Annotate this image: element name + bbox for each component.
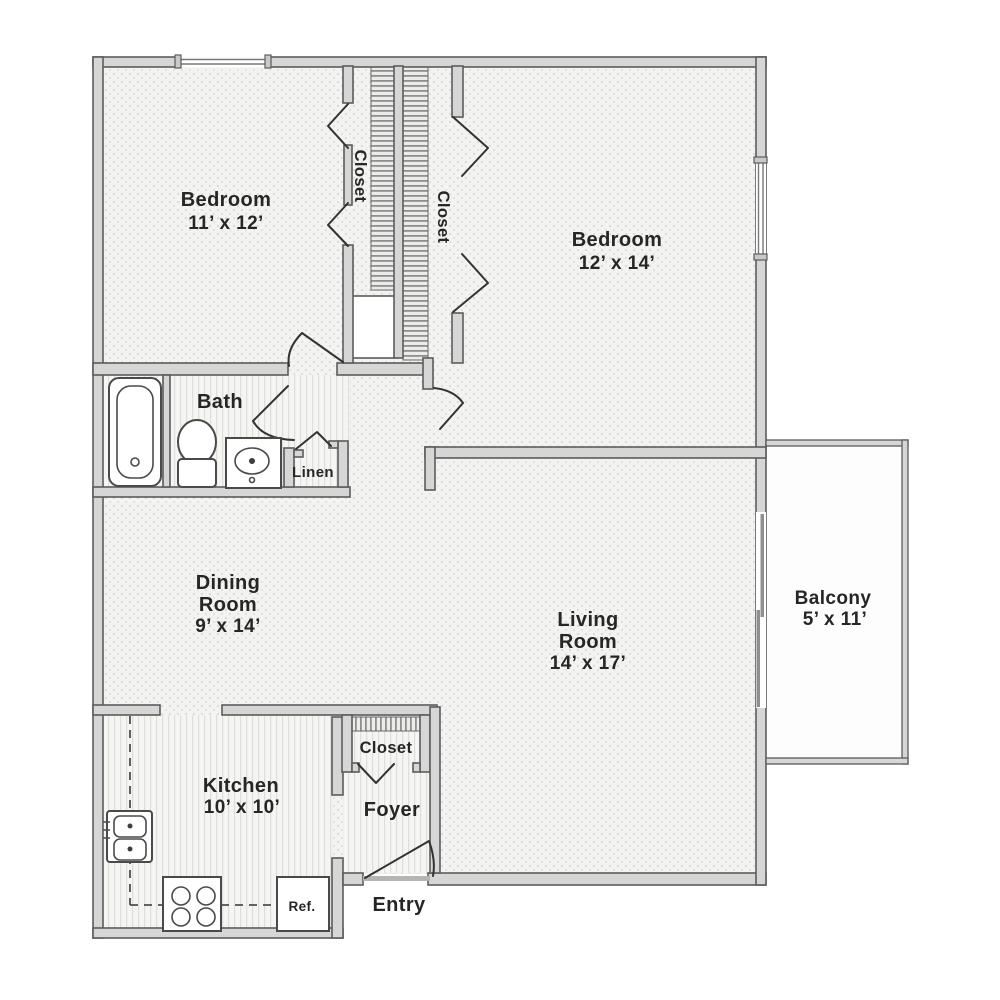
toilet bbox=[178, 420, 216, 487]
kitchen-dims: 10’ x 10’ bbox=[204, 797, 281, 818]
kitchen-name: Kitchen bbox=[203, 775, 279, 797]
refrigerator: Ref. bbox=[277, 877, 329, 931]
bedroom1-name: Bedroom bbox=[181, 189, 272, 211]
living-room-dims: 14’ x 17’ bbox=[550, 653, 627, 674]
dining-room-name-line1: Dining bbox=[196, 572, 261, 594]
balcony-dims: 5’ x 11’ bbox=[803, 609, 868, 630]
kitchen-sink bbox=[103, 811, 152, 862]
dining-room-dims: 9’ x 14’ bbox=[195, 616, 261, 637]
bedroom1-window bbox=[178, 57, 268, 67]
bedroom2-dims: 12’ x 14’ bbox=[579, 253, 656, 274]
balcony-wall-bottom bbox=[766, 758, 908, 764]
bedroom1-closet-label: Closet bbox=[351, 150, 369, 203]
entry-threshold bbox=[363, 876, 430, 881]
foyer-label: Foyer bbox=[364, 799, 420, 821]
bedroom1-closet-shelf-hatch bbox=[371, 66, 394, 290]
balcony-wall-top bbox=[766, 440, 908, 446]
living-room-name-line1: Living bbox=[557, 609, 618, 631]
bathtub bbox=[109, 378, 161, 486]
bath-label: Bath bbox=[197, 391, 243, 413]
foyer-closet-label: Closet bbox=[360, 739, 413, 757]
stove bbox=[163, 877, 221, 931]
foyer-closet-shelf-hatch bbox=[352, 717, 420, 731]
floor-plan: Ref. Bedroom 11’ x 12’ Closet Closet Bed… bbox=[0, 0, 1000, 1000]
bedroom1-dims: 11’ x 12’ bbox=[188, 213, 263, 234]
dining-room-name-line2: Room bbox=[199, 594, 257, 616]
bedroom1-closet-shelf-box bbox=[352, 296, 395, 358]
bedroom2-name: Bedroom bbox=[572, 229, 663, 251]
entry-label: Entry bbox=[372, 894, 426, 916]
linen-closet-label: Linen bbox=[292, 464, 334, 481]
bedroom2-window bbox=[756, 160, 766, 257]
living-room-name-line2: Room bbox=[559, 631, 617, 653]
refrigerator-label: Ref. bbox=[288, 899, 315, 914]
balcony-wall-right bbox=[902, 440, 908, 764]
floor-plan-svg: Ref. Bedroom 11’ x 12’ Closet Closet Bed… bbox=[0, 0, 1000, 1000]
bedroom2-closet-shelf-hatch bbox=[403, 66, 428, 360]
bathroom-sink bbox=[226, 438, 281, 488]
balcony-name: Balcony bbox=[795, 588, 872, 609]
bedroom2-closet-label: Closet bbox=[434, 191, 452, 244]
